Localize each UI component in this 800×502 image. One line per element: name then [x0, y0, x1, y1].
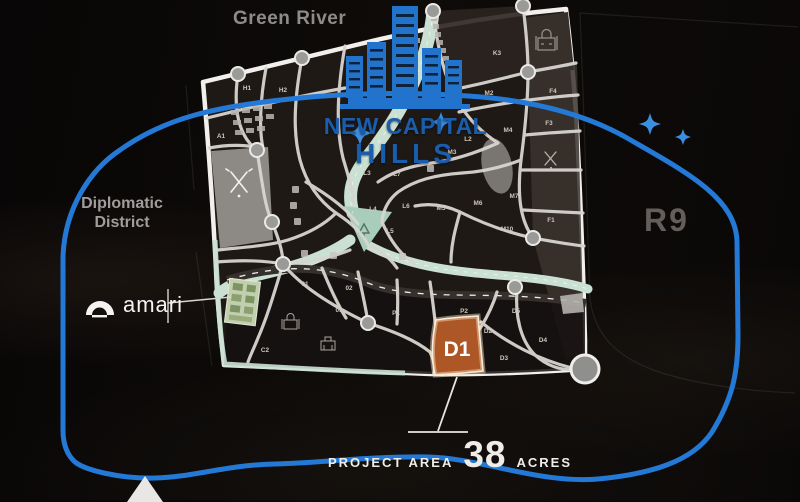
- diplomatic-line1: Diplomatic: [58, 194, 186, 213]
- project-area-value: 38: [463, 434, 506, 476]
- plot-label: D4: [539, 337, 548, 344]
- plot-label: P1: [392, 310, 400, 317]
- arch-icon: [82, 291, 118, 319]
- plot-label: A1: [217, 133, 226, 140]
- plot-label: F3: [545, 120, 553, 127]
- plot-label: F4: [549, 88, 557, 95]
- r9-label: R9: [644, 202, 689, 239]
- plot-label: D2: [484, 328, 493, 335]
- plot-label: M6: [474, 200, 483, 207]
- project-area: PROJECT AREA 38 ACRES: [300, 434, 600, 476]
- project-area-label: PROJECT AREA: [328, 455, 453, 470]
- plot-label: M10: [501, 226, 514, 233]
- d1-callout: [408, 377, 468, 432]
- plot-label: 01: [301, 281, 309, 288]
- plot-label: M5: [437, 205, 446, 212]
- diplomatic-district-label: Diplomatic District: [58, 194, 186, 232]
- brand-logo: NEW CAPITAL HILLS: [308, 2, 503, 170]
- plot-label: D5: [512, 308, 521, 315]
- edge-plot: [560, 293, 584, 314]
- amari-logo: amari: [82, 291, 183, 319]
- project-area-unit: ACRES: [517, 455, 573, 470]
- plot-label: M7: [510, 193, 519, 200]
- plot-label: H2: [279, 87, 288, 94]
- gate-node: [571, 355, 599, 383]
- amari-wordmark: amari: [123, 292, 183, 318]
- pyramid-icon: [127, 476, 163, 502]
- plot-label: H1: [243, 85, 252, 92]
- plot-d1: D1: [432, 316, 483, 375]
- plot-label: M4: [504, 127, 513, 134]
- skyline-buildings-icon: [326, 2, 486, 112]
- zone-school: [523, 12, 574, 72]
- plot-d1-label: D1: [444, 338, 471, 361]
- diplomatic-line2: District: [58, 213, 186, 232]
- amari-plot: [224, 278, 260, 325]
- plot-label: L5: [386, 228, 394, 235]
- plot-label: L6: [402, 203, 410, 210]
- plot-label: 03: [335, 307, 343, 314]
- plot-label: L7: [393, 171, 401, 178]
- brand-name-line2: HILLS: [308, 138, 503, 170]
- plot-label: P2: [460, 308, 468, 315]
- plot-label: F1: [547, 217, 555, 224]
- plot-label: C2: [261, 347, 270, 354]
- brand-name-line1: NEW CAPITAL: [308, 113, 503, 140]
- plot-label: L3: [363, 170, 371, 177]
- plot-label: D3: [500, 355, 509, 362]
- plot-label: 02: [345, 285, 353, 292]
- plot-label: L4: [369, 206, 377, 213]
